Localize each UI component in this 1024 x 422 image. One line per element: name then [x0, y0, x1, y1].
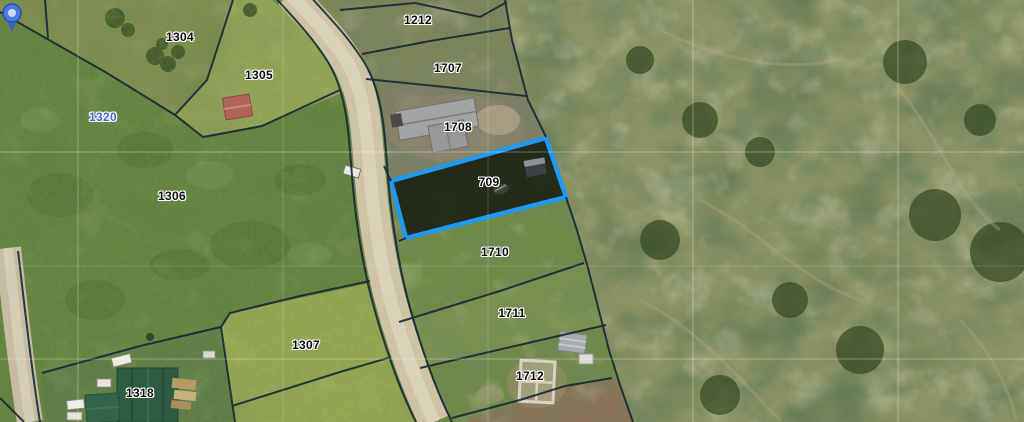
map-pin[interactable]: [0, 0, 24, 34]
vehicle: [67, 412, 82, 420]
aerial-basemap: [0, 0, 1024, 422]
dark-shed: [524, 157, 548, 177]
vehicle: [97, 379, 111, 387]
foundation: [519, 360, 555, 403]
red-shed: [222, 94, 252, 120]
map-viewport[interactable]: 1304130513201306121217071708709171017111…: [0, 0, 1024, 422]
trailer: [390, 113, 403, 128]
vehicle: [67, 399, 85, 410]
trailer: [203, 351, 215, 358]
